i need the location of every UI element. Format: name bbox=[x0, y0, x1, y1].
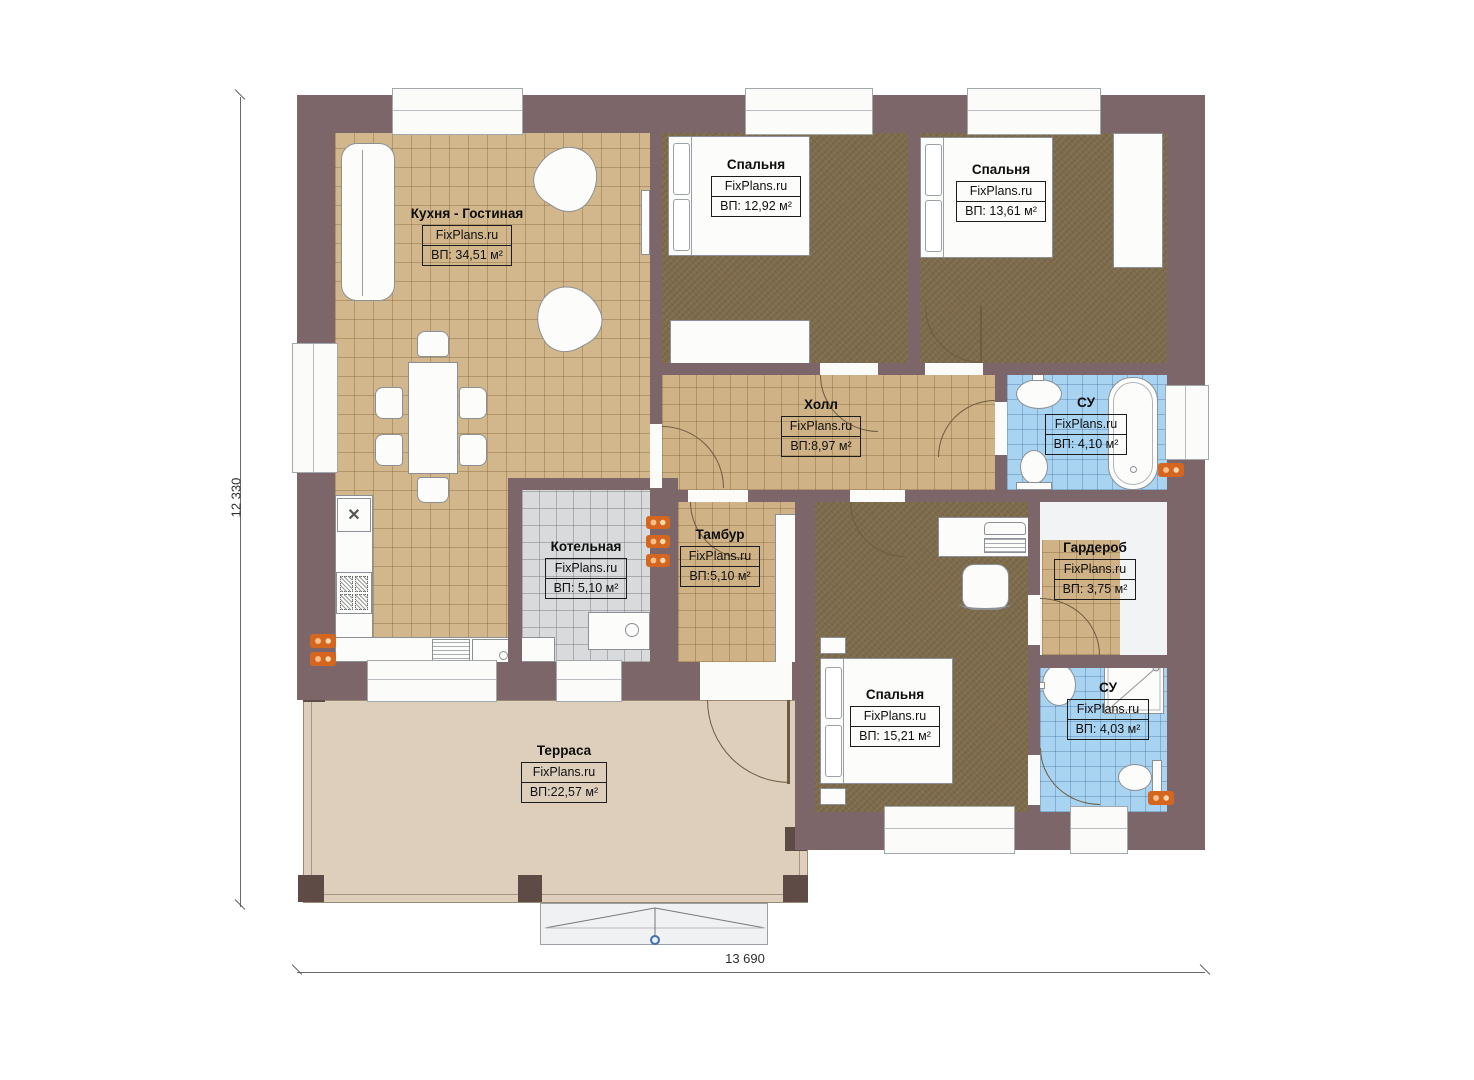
terrace-post bbox=[783, 875, 808, 902]
room-label-bedroom-1: Спальня FixPlans.ru ВП: 12,92 м² bbox=[697, 158, 815, 217]
kitchen-sink: ✕ bbox=[337, 498, 371, 532]
sofa-seat-line bbox=[362, 150, 363, 296]
wall-wardrobe-bathroom2 bbox=[1040, 655, 1167, 668]
window bbox=[1165, 385, 1209, 460]
area-label: ВП: 4,10 м² bbox=[1046, 434, 1127, 454]
window bbox=[745, 88, 873, 135]
computer bbox=[984, 538, 1026, 553]
burner bbox=[340, 594, 353, 610]
toilet-tank bbox=[1152, 760, 1162, 794]
room-name: Спальня bbox=[866, 688, 924, 703]
steps-marking bbox=[541, 904, 769, 946]
room-label-bathroom-1: СУ FixPlans.ru ВП: 4,10 м² bbox=[1032, 396, 1140, 455]
room-name: Кухня - Гостиная bbox=[411, 207, 523, 222]
room-name: Тамбур bbox=[696, 528, 745, 543]
room-label-hall: Холл FixPlans.ru ВП:8,97 м² bbox=[762, 398, 880, 457]
toilet-bowl bbox=[1020, 450, 1048, 484]
door-opening-bathroom2 bbox=[1028, 755, 1040, 805]
dimension-label-height: 12 330 bbox=[229, 458, 244, 538]
dimension-tick bbox=[292, 964, 303, 975]
boiler-unit bbox=[588, 612, 650, 650]
brand-label: FixPlans.ru bbox=[522, 763, 606, 782]
brand-label: FixPlans.ru bbox=[681, 547, 760, 566]
wall-boiler-top bbox=[508, 478, 650, 490]
radiator bbox=[310, 634, 336, 648]
brand-label: FixPlans.ru bbox=[1046, 415, 1127, 434]
printer bbox=[984, 522, 1026, 535]
dining-chair bbox=[459, 434, 487, 466]
room-label-terrace: Терраса FixPlans.ru ВП:22,57 м² bbox=[508, 744, 620, 803]
brand-label: FixPlans.ru bbox=[957, 182, 1045, 201]
stove bbox=[336, 572, 372, 614]
nightstand bbox=[820, 637, 846, 654]
brand-label: FixPlans.ru bbox=[546, 559, 627, 578]
area-label: ВП: 13,61 м² bbox=[957, 201, 1045, 221]
room-label-kitchen-living: Кухня - Гостиная FixPlans.ru ВП: 34,51 м… bbox=[387, 207, 547, 266]
window-boiler bbox=[556, 660, 622, 702]
toilet-tank bbox=[1016, 482, 1052, 490]
pillow bbox=[925, 200, 942, 252]
door-opening-bathroom1 bbox=[995, 402, 1007, 455]
room-info-box: FixPlans.ru ВП:8,97 м² bbox=[781, 416, 862, 457]
room-info-box: FixPlans.ru ВП: 4,10 м² bbox=[1045, 414, 1128, 455]
room-name: Гардероб bbox=[1063, 541, 1127, 556]
dining-chair bbox=[375, 387, 403, 419]
area-label: ВП: 34,51 м² bbox=[423, 245, 511, 265]
room-label-vestibule: Тамбур FixPlans.ru ВП:5,10 м² bbox=[666, 528, 774, 587]
window bbox=[292, 343, 338, 473]
room-label-bedroom-3: Спальня FixPlans.ru ВП: 15,21 м² bbox=[838, 688, 952, 747]
headboard-line bbox=[691, 137, 692, 255]
dimension-line-horizontal bbox=[297, 972, 1205, 973]
radiator bbox=[1148, 791, 1174, 805]
door-opening-bedroom3 bbox=[850, 490, 905, 502]
room-info-box: FixPlans.ru ВП: 15,21 м² bbox=[850, 706, 940, 747]
door-opening-bedroom1 bbox=[820, 363, 878, 375]
area-label: ВП: 4,03 м² bbox=[1068, 719, 1149, 739]
floor-plan: ✕ bbox=[0, 0, 1474, 1080]
room-name: СУ bbox=[1077, 396, 1095, 411]
brand-label: FixPlans.ru bbox=[1068, 700, 1149, 719]
pillow bbox=[673, 143, 690, 195]
area-label: ВП: 12,92 м² bbox=[712, 196, 800, 216]
door-opening-vestibule bbox=[688, 490, 748, 502]
nightstand bbox=[820, 788, 846, 805]
brand-label: FixPlans.ru bbox=[1055, 560, 1136, 579]
door-opening-entrance bbox=[700, 662, 792, 700]
dimension-tick bbox=[1200, 964, 1211, 975]
window bbox=[392, 88, 523, 135]
pillow bbox=[925, 144, 942, 196]
tv-panel bbox=[641, 190, 650, 255]
room-label-boiler-room: Котельная FixPlans.ru ВП: 5,10 м² bbox=[530, 540, 642, 599]
door-opening-kitchen-hall bbox=[650, 424, 662, 488]
drain bbox=[499, 651, 508, 660]
area-label: ВП: 5,10 м² bbox=[546, 578, 627, 598]
room-info-box: FixPlans.ru ВП:22,57 м² bbox=[521, 762, 607, 803]
room-label-bedroom-2: Спальня FixPlans.ru ВП: 13,61 м² bbox=[942, 163, 1060, 222]
room-info-box: FixPlans.ru ВП: 13,61 м² bbox=[956, 181, 1046, 222]
dresser bbox=[670, 320, 810, 365]
room-info-box: FixPlans.ru ВП: 5,10 м² bbox=[545, 558, 628, 599]
faucet bbox=[1032, 374, 1044, 381]
pillow bbox=[673, 199, 690, 251]
wardrobe-cabinet bbox=[1113, 133, 1163, 268]
room-name: СУ bbox=[1099, 681, 1117, 696]
door-leaf-entrance bbox=[787, 700, 790, 784]
dining-chair bbox=[459, 387, 487, 419]
window bbox=[884, 806, 1015, 854]
burner bbox=[355, 576, 368, 592]
room-info-box: FixPlans.ru ВП:5,10 м² bbox=[680, 546, 761, 587]
terrace-railing-left bbox=[311, 700, 312, 903]
brand-label: FixPlans.ru bbox=[712, 177, 800, 196]
toilet-bowl bbox=[1118, 764, 1152, 791]
desk-chair-arm bbox=[958, 596, 1012, 610]
room-name: Терраса bbox=[537, 744, 591, 759]
brand-label: FixPlans.ru bbox=[423, 226, 511, 245]
terrace-railing-bottom bbox=[303, 894, 808, 895]
dining-table bbox=[408, 362, 458, 474]
room-name: Спальня bbox=[972, 163, 1030, 178]
door-opening-wardrobe bbox=[1028, 595, 1040, 645]
brand-label: FixPlans.ru bbox=[782, 417, 861, 436]
room-label-wardrobe: Гардероб FixPlans.ru ВП: 3,75 м² bbox=[1046, 541, 1144, 600]
burner bbox=[355, 594, 368, 610]
wall-hall-top bbox=[662, 363, 1167, 375]
room-name: Котельная bbox=[551, 540, 622, 555]
room-info-box: FixPlans.ru ВП: 34,51 м² bbox=[422, 225, 512, 266]
terrace-post bbox=[518, 875, 542, 902]
area-label: ВП:22,57 м² bbox=[522, 782, 606, 802]
room-info-box: FixPlans.ru ВП: 4,03 м² bbox=[1067, 699, 1150, 740]
window bbox=[1070, 806, 1128, 854]
radiator bbox=[310, 652, 336, 666]
brand-label: FixPlans.ru bbox=[851, 707, 939, 726]
area-label: ВП:5,10 м² bbox=[681, 566, 760, 586]
dining-chair bbox=[375, 434, 403, 466]
room-name: Холл bbox=[804, 398, 838, 413]
wall-kitchen-bedroom1 bbox=[650, 133, 662, 424]
room-info-box: FixPlans.ru ВП: 12,92 м² bbox=[711, 176, 801, 217]
room-info-box: FixPlans.ru ВП: 3,75 м² bbox=[1054, 559, 1137, 600]
terrace-post bbox=[298, 875, 324, 902]
area-label: ВП:8,97 м² bbox=[782, 436, 861, 456]
room-name: Спальня bbox=[727, 158, 785, 173]
area-label: ВП: 15,21 м² bbox=[851, 726, 939, 746]
door-opening-bedroom2 bbox=[925, 363, 983, 375]
entry-marker bbox=[651, 936, 659, 944]
room-label-bathroom-2: СУ FixPlans.ru ВП: 4,03 м² bbox=[1058, 681, 1158, 740]
entrance-steps bbox=[540, 903, 768, 945]
dining-chair bbox=[417, 331, 449, 357]
bathtub-drain bbox=[1130, 466, 1137, 473]
dining-chair bbox=[417, 477, 449, 503]
dimension-label-width: 13 690 bbox=[690, 951, 800, 966]
wall-wing-left bbox=[795, 502, 815, 812]
wall-bedroom1-bedroom2 bbox=[908, 133, 920, 363]
window-terrace-door bbox=[367, 660, 497, 702]
area-label: ВП: 3,75 м² bbox=[1055, 579, 1136, 599]
burner bbox=[340, 576, 353, 592]
radiator bbox=[1158, 463, 1184, 477]
door-leaf-bedroom2 bbox=[980, 306, 982, 363]
window bbox=[967, 88, 1101, 135]
wall-boiler-left bbox=[508, 478, 522, 662]
boiler-dial bbox=[625, 623, 639, 637]
vestibule-bench bbox=[775, 514, 796, 664]
